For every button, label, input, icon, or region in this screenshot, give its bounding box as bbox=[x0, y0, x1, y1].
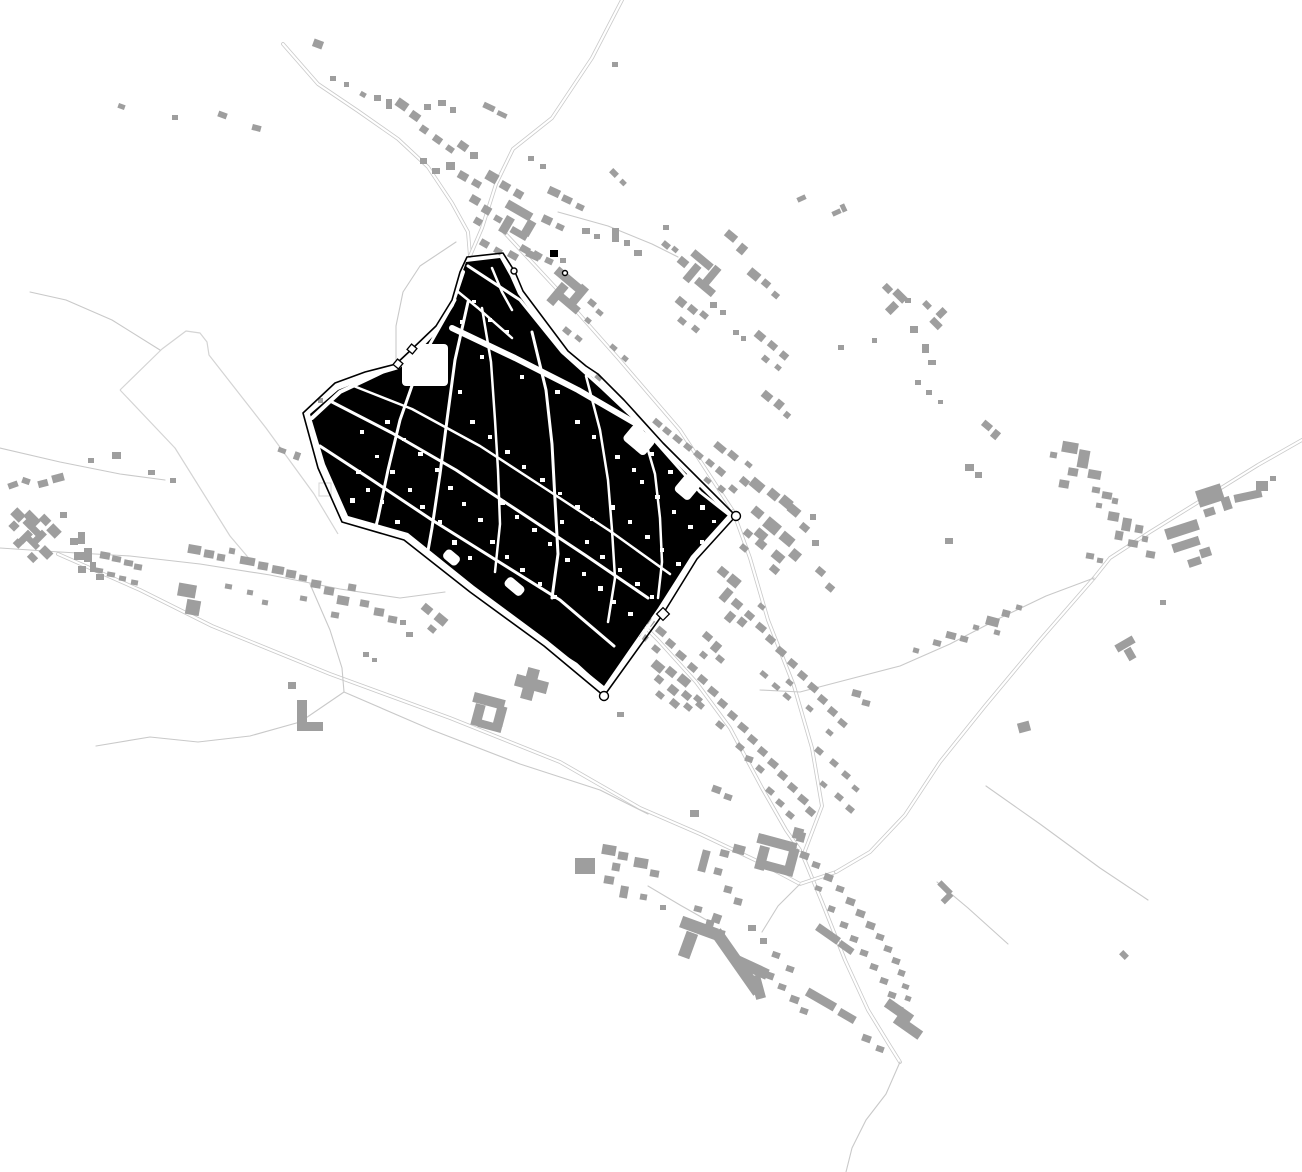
gray-building bbox=[438, 100, 446, 106]
courtyard bbox=[430, 360, 435, 364]
gray-building bbox=[837, 718, 848, 728]
gray-building bbox=[10, 507, 26, 523]
gray-building bbox=[225, 583, 233, 589]
gray-building bbox=[27, 552, 38, 563]
gray-building bbox=[1233, 489, 1262, 503]
gray-building bbox=[665, 666, 678, 679]
courtyard bbox=[520, 568, 525, 572]
gray-building bbox=[935, 307, 947, 319]
gray-building bbox=[603, 875, 614, 885]
gray-building bbox=[611, 862, 620, 871]
gray-building bbox=[681, 690, 692, 701]
gray-building bbox=[799, 522, 810, 533]
gray-building bbox=[124, 559, 134, 566]
gray-building bbox=[288, 682, 296, 689]
gray-building bbox=[697, 849, 710, 872]
gray-building bbox=[1256, 481, 1268, 491]
gray-building bbox=[990, 429, 1001, 440]
gray-building bbox=[959, 635, 968, 643]
courtyard bbox=[590, 518, 594, 521]
gray-building bbox=[748, 925, 756, 931]
gray-building bbox=[424, 104, 431, 110]
courtyard bbox=[575, 505, 580, 509]
gray-building bbox=[587, 298, 597, 308]
gray-building bbox=[724, 229, 738, 243]
gray-building bbox=[651, 644, 661, 654]
gray-building bbox=[872, 338, 877, 343]
gray-building bbox=[654, 674, 665, 685]
gray-building bbox=[374, 95, 381, 101]
gray-building bbox=[755, 622, 767, 634]
gray-building bbox=[1017, 721, 1031, 734]
gray-building bbox=[445, 144, 455, 154]
cluster-west-edge-cluster bbox=[7, 473, 142, 586]
gray-building bbox=[310, 579, 321, 589]
gray-building bbox=[859, 949, 869, 957]
wall-node-circle bbox=[732, 512, 741, 521]
gray-building bbox=[811, 861, 821, 869]
gray-building bbox=[699, 310, 709, 320]
gray-building bbox=[434, 612, 449, 627]
gray-building bbox=[347, 583, 356, 591]
gray-building bbox=[905, 298, 911, 303]
gray-building bbox=[359, 91, 367, 98]
gray-building bbox=[671, 246, 679, 254]
gray-building bbox=[582, 228, 590, 234]
gray-building bbox=[817, 694, 828, 705]
gray-building bbox=[312, 39, 324, 50]
gray-building bbox=[965, 464, 974, 471]
gray-building bbox=[1220, 496, 1233, 511]
gray-building bbox=[755, 764, 765, 774]
gray-building bbox=[834, 792, 844, 802]
gray-building bbox=[975, 472, 982, 478]
gray-building bbox=[767, 340, 778, 351]
cluster-sw-outskirts bbox=[288, 603, 754, 817]
courtyard bbox=[390, 470, 395, 474]
courtyard bbox=[520, 375, 524, 379]
cluster-bottom-left-hamlet bbox=[575, 844, 666, 910]
gray-building bbox=[457, 170, 470, 182]
gray-building bbox=[731, 598, 744, 611]
gray-building bbox=[785, 965, 795, 973]
courtyard bbox=[350, 498, 355, 503]
gray-building bbox=[185, 599, 201, 616]
gray-building bbox=[612, 62, 618, 67]
gray-building bbox=[891, 957, 901, 965]
gray-building bbox=[1199, 547, 1212, 559]
gray-building bbox=[841, 770, 851, 780]
gray-building bbox=[805, 704, 814, 712]
courtyard bbox=[650, 595, 654, 599]
gray-building bbox=[778, 531, 795, 548]
courtyard bbox=[582, 572, 586, 576]
gray-building bbox=[499, 180, 512, 192]
courtyard bbox=[552, 595, 557, 599]
gray-building bbox=[727, 710, 738, 721]
gray-building bbox=[134, 563, 143, 570]
gray-building bbox=[705, 458, 715, 468]
gray-building bbox=[720, 310, 726, 315]
gray-building bbox=[715, 466, 726, 477]
courtyard bbox=[712, 520, 716, 523]
gray-building bbox=[771, 549, 786, 564]
gray-building bbox=[78, 532, 85, 544]
gray-building bbox=[7, 480, 18, 489]
gray-building bbox=[915, 380, 921, 385]
gray-building bbox=[633, 857, 649, 869]
gray-building bbox=[885, 301, 899, 315]
gray-building bbox=[293, 451, 301, 461]
gray-building bbox=[929, 317, 942, 330]
gray-building bbox=[640, 893, 648, 900]
gray-building bbox=[744, 460, 753, 468]
gray-building bbox=[993, 629, 1000, 635]
gray-building bbox=[594, 234, 600, 239]
courtyard bbox=[366, 488, 370, 492]
gray-building bbox=[845, 804, 855, 814]
gray-building bbox=[815, 923, 841, 944]
gray-building bbox=[774, 364, 782, 372]
gray-building bbox=[744, 610, 755, 621]
core-building bbox=[550, 250, 558, 257]
gray-building bbox=[112, 452, 121, 459]
gray-building bbox=[727, 450, 739, 462]
gray-building bbox=[771, 290, 780, 299]
courtyard bbox=[418, 452, 423, 456]
map-stage bbox=[0, 0, 1302, 1172]
gray-building bbox=[777, 770, 788, 781]
courtyard bbox=[380, 500, 384, 504]
gray-building bbox=[724, 611, 737, 624]
cluster-north-village bbox=[117, 39, 669, 266]
gray-building bbox=[827, 905, 836, 913]
gray-building bbox=[810, 514, 816, 520]
courtyard bbox=[435, 468, 439, 472]
gray-building bbox=[747, 267, 762, 282]
gray-building bbox=[812, 540, 819, 546]
gray-building bbox=[400, 620, 406, 625]
gray-building bbox=[838, 345, 844, 350]
esplanade-line bbox=[120, 331, 338, 534]
courtyard bbox=[668, 470, 673, 474]
gray-building bbox=[687, 304, 698, 315]
gray-building bbox=[229, 548, 236, 555]
gray-building bbox=[837, 940, 854, 955]
gray-building bbox=[710, 641, 723, 654]
gray-building bbox=[825, 728, 834, 736]
courtyard bbox=[565, 558, 570, 562]
gray-building bbox=[1119, 950, 1129, 960]
gray-building bbox=[88, 458, 94, 463]
gray-building bbox=[779, 350, 790, 361]
gray-building bbox=[981, 420, 993, 432]
gray-building bbox=[359, 599, 369, 607]
gray-building bbox=[775, 798, 785, 808]
gray-building bbox=[446, 162, 455, 170]
gray-building bbox=[805, 988, 837, 1012]
courtyard bbox=[575, 420, 580, 424]
gray-building bbox=[216, 553, 225, 561]
figure-ground-map bbox=[0, 0, 1302, 1172]
gray-building bbox=[736, 243, 749, 256]
gray-building bbox=[528, 156, 534, 161]
gray-building bbox=[797, 670, 808, 681]
gray-building bbox=[807, 682, 819, 694]
gray-building bbox=[619, 885, 629, 898]
courtyard bbox=[600, 555, 605, 559]
gray-building bbox=[733, 897, 743, 906]
gray-building bbox=[277, 447, 286, 454]
gray-building bbox=[715, 654, 725, 664]
gray-building bbox=[785, 810, 795, 820]
gray-building bbox=[1124, 647, 1137, 661]
courtyard bbox=[615, 455, 620, 459]
wall-node-circle bbox=[511, 268, 517, 274]
courtyard bbox=[618, 568, 622, 572]
gray-building bbox=[710, 302, 717, 308]
courtyard bbox=[375, 455, 379, 458]
road bbox=[58, 554, 836, 884]
gray-building bbox=[37, 479, 48, 488]
gray-building bbox=[1096, 503, 1103, 509]
gray-building bbox=[875, 1045, 885, 1053]
gray-building bbox=[432, 134, 443, 145]
gray-building bbox=[849, 935, 859, 943]
courtyard bbox=[560, 520, 564, 524]
courtyard bbox=[522, 465, 526, 469]
gray-building bbox=[187, 544, 201, 555]
courtyard bbox=[505, 450, 510, 454]
gray-building bbox=[761, 390, 774, 403]
gray-building bbox=[172, 115, 178, 120]
courtyard bbox=[548, 542, 552, 546]
courtyard bbox=[438, 520, 442, 524]
gray-building bbox=[1145, 550, 1155, 558]
gray-building bbox=[901, 983, 909, 990]
gray-building bbox=[789, 995, 800, 1005]
gray-building bbox=[651, 659, 666, 674]
gray-building bbox=[837, 1008, 857, 1024]
gray-building bbox=[717, 698, 728, 709]
courtyard bbox=[585, 540, 589, 544]
road-casing bbox=[58, 554, 836, 884]
gray-building bbox=[507, 250, 519, 261]
gray-building bbox=[851, 689, 862, 698]
courtyard bbox=[505, 555, 509, 559]
courtyard bbox=[632, 468, 636, 472]
gray-building bbox=[1134, 524, 1143, 533]
gray-building bbox=[723, 885, 733, 894]
gray-building bbox=[541, 214, 553, 225]
courtyard bbox=[655, 495, 660, 499]
gray-building bbox=[655, 690, 665, 700]
gray-building bbox=[732, 844, 746, 856]
gray-building bbox=[787, 782, 798, 793]
gray-building bbox=[985, 615, 1000, 627]
courtyard bbox=[445, 295, 449, 299]
gray-building bbox=[1050, 451, 1058, 458]
gray-building bbox=[560, 258, 566, 263]
gray-building bbox=[912, 647, 919, 653]
gray-building bbox=[839, 921, 849, 929]
gray-building bbox=[861, 699, 870, 707]
gray-building bbox=[386, 99, 392, 109]
esplanade-line bbox=[120, 390, 252, 562]
gray-building bbox=[759, 670, 768, 679]
courtyard bbox=[468, 556, 472, 560]
road bbox=[0, 448, 165, 480]
courtyard bbox=[700, 540, 704, 544]
courtyard bbox=[356, 470, 361, 474]
courtyard bbox=[470, 420, 475, 424]
gray-building bbox=[796, 194, 806, 202]
gray-building bbox=[471, 178, 482, 189]
gray-building bbox=[938, 400, 943, 404]
gray-building bbox=[251, 124, 261, 132]
gray-building bbox=[883, 945, 893, 953]
gray-building bbox=[409, 110, 422, 122]
gray-building bbox=[754, 330, 767, 343]
gray-building bbox=[757, 746, 768, 757]
gray-building bbox=[669, 698, 680, 709]
gray-building bbox=[561, 194, 573, 205]
gray-building bbox=[493, 214, 503, 223]
courtyard bbox=[610, 505, 615, 510]
gray-building bbox=[667, 684, 680, 697]
gray-building bbox=[717, 566, 730, 579]
gray-building bbox=[39, 514, 52, 527]
gray-building bbox=[60, 512, 67, 518]
gray-building bbox=[331, 611, 340, 618]
gray-building bbox=[661, 240, 671, 250]
gray-building bbox=[799, 1007, 809, 1015]
gray-building bbox=[799, 851, 810, 861]
gray-building bbox=[766, 488, 780, 502]
gray-building bbox=[1112, 498, 1119, 505]
esplanade-layer bbox=[120, 331, 338, 562]
gray-building bbox=[262, 600, 269, 606]
gray-building bbox=[736, 616, 747, 627]
gray-building bbox=[760, 938, 767, 944]
courtyard bbox=[395, 520, 400, 524]
gray-building bbox=[406, 632, 413, 637]
gray-building bbox=[74, 552, 84, 560]
cluster-far-ne-hamlet bbox=[872, 283, 1001, 544]
gray-building bbox=[170, 478, 176, 483]
gray-building bbox=[395, 97, 410, 111]
gray-building bbox=[239, 556, 255, 566]
gray-building bbox=[330, 76, 336, 81]
gray-building bbox=[769, 564, 780, 575]
gray-building bbox=[728, 484, 738, 494]
courtyard bbox=[676, 562, 681, 566]
gray-building bbox=[945, 631, 956, 640]
gray-building bbox=[718, 587, 733, 603]
gray-building bbox=[617, 851, 628, 861]
gray-building bbox=[372, 658, 377, 662]
gray-building bbox=[555, 223, 565, 232]
gray-building bbox=[897, 969, 906, 977]
gray-building bbox=[112, 555, 122, 562]
gray-building bbox=[887, 991, 897, 999]
gray-building bbox=[713, 441, 727, 454]
gray-building bbox=[835, 885, 845, 893]
gray-building bbox=[932, 639, 941, 647]
gray-building bbox=[926, 390, 932, 395]
gray-building bbox=[46, 523, 62, 539]
gray-building bbox=[771, 682, 780, 691]
courtyard bbox=[488, 435, 492, 439]
wall-node-circle bbox=[563, 271, 568, 276]
courtyard bbox=[385, 420, 390, 424]
gray-building bbox=[575, 858, 595, 874]
gray-building bbox=[1077, 449, 1091, 469]
road bbox=[762, 884, 800, 932]
gray-building bbox=[741, 336, 746, 341]
gray-building bbox=[660, 905, 666, 910]
gray-building bbox=[624, 240, 630, 246]
gray-building bbox=[609, 168, 619, 178]
gray-building bbox=[575, 203, 585, 212]
gray-building bbox=[662, 426, 672, 436]
gray-building bbox=[829, 758, 839, 768]
gray-building bbox=[675, 296, 688, 309]
courtyard bbox=[598, 586, 603, 591]
gray-building bbox=[1171, 536, 1200, 553]
road bbox=[836, 578, 1094, 872]
gray-building bbox=[922, 344, 929, 353]
courtyard bbox=[592, 435, 596, 439]
courtyard bbox=[490, 540, 495, 544]
gray-building bbox=[601, 844, 617, 856]
gray-building bbox=[761, 354, 770, 363]
gray-building bbox=[797, 794, 809, 806]
gray-building bbox=[726, 573, 742, 588]
gray-building bbox=[96, 574, 104, 580]
gray-building bbox=[482, 102, 495, 113]
gray-building bbox=[875, 933, 885, 941]
gray-building bbox=[713, 867, 723, 876]
gray-building bbox=[619, 179, 627, 187]
gray-building bbox=[1086, 552, 1095, 559]
gray-building bbox=[882, 283, 893, 294]
gray-building bbox=[479, 238, 490, 249]
gray-building bbox=[652, 418, 663, 428]
gray-building bbox=[1097, 558, 1104, 564]
courtyard bbox=[640, 480, 644, 484]
gray-building bbox=[723, 793, 733, 801]
gray-building bbox=[972, 624, 979, 630]
gray-building bbox=[450, 107, 456, 113]
gray-building bbox=[78, 566, 86, 573]
courtyard bbox=[688, 525, 693, 529]
courtyard bbox=[558, 492, 562, 495]
gray-building bbox=[788, 548, 802, 562]
gray-building bbox=[782, 692, 791, 701]
gray-building bbox=[845, 897, 856, 907]
gray-building bbox=[747, 734, 758, 745]
gray-building bbox=[469, 194, 482, 206]
gray-building bbox=[457, 140, 470, 152]
courtyard bbox=[660, 548, 664, 552]
gray-building bbox=[387, 615, 397, 623]
gray-building bbox=[1087, 469, 1101, 480]
core-buildings-layer bbox=[310, 250, 728, 690]
gray-building bbox=[1160, 600, 1166, 605]
gray-building bbox=[1058, 479, 1069, 489]
gray-building bbox=[928, 360, 936, 365]
